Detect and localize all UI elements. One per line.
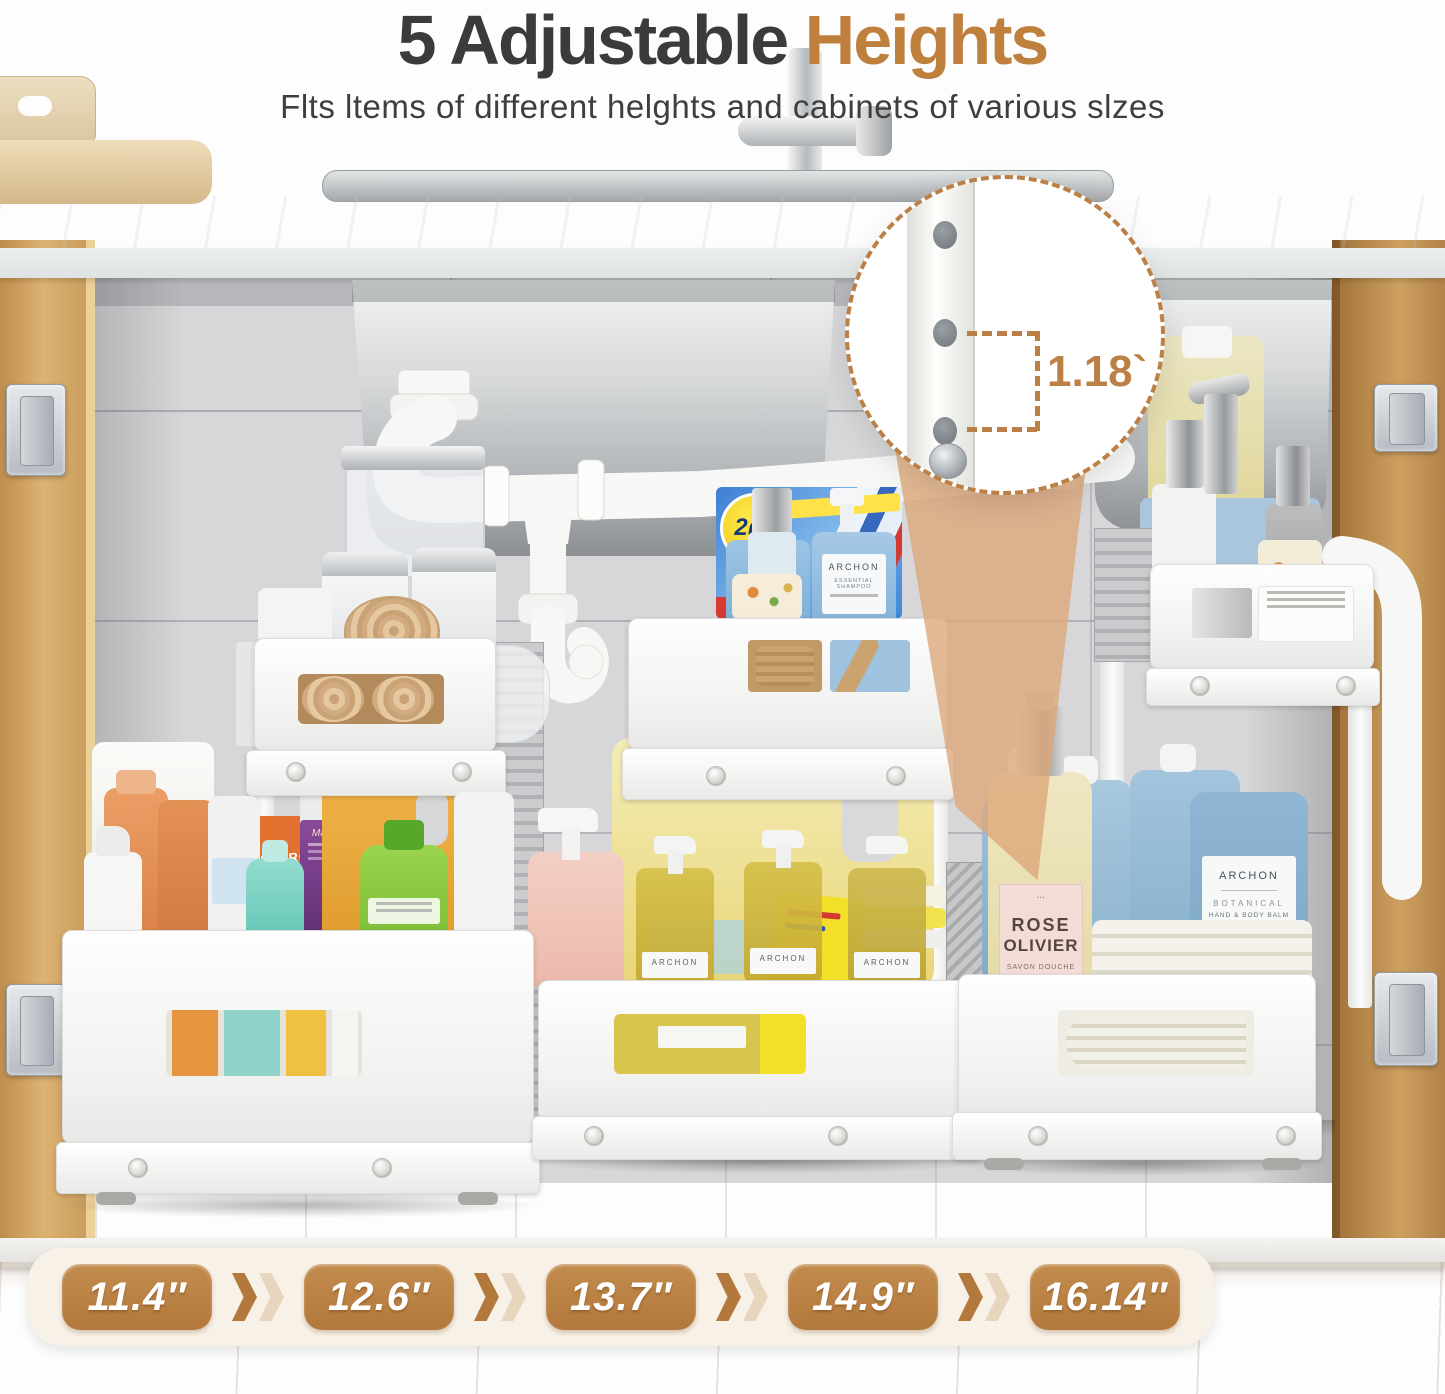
screw <box>452 762 472 782</box>
basin-left-shadow <box>352 280 835 302</box>
double-chevron-right-icon <box>958 1273 1010 1321</box>
left-bottom-bin-window <box>166 1010 362 1076</box>
window-bottle-strip <box>332 1010 358 1076</box>
chevron-right-icon <box>259 1273 284 1321</box>
pink-pump-stem <box>562 828 580 860</box>
chevron-right-icon <box>985 1273 1010 1321</box>
chevron-right-icon <box>743 1273 768 1321</box>
screw <box>1190 676 1210 696</box>
rose-line3: SAVON DOUCHE <box>1000 964 1082 971</box>
orange-bottle-cap <box>116 770 156 794</box>
pink-pump-bottle <box>528 852 624 988</box>
green-bottle-label <box>368 898 440 924</box>
window-label <box>658 1026 746 1048</box>
chevron-right-icon <box>232 1273 257 1321</box>
screw <box>886 766 906 786</box>
tall-oil-bottle-cap <box>1182 326 1232 358</box>
left-top-tier-window <box>298 674 444 724</box>
amber-pump-head <box>866 836 908 854</box>
measure-bracket-bottom <box>967 427 1037 432</box>
amber-bottle-label: ARCHON <box>854 952 920 978</box>
double-chevron-right-icon <box>474 1273 526 1321</box>
size-badge: 13.7″ <box>546 1264 696 1330</box>
gray-pump-cap <box>1276 446 1310 506</box>
bin-foot <box>96 1192 136 1205</box>
towel-roll <box>302 676 364 722</box>
amber-bottle-label: ARCHON <box>642 952 708 978</box>
shampoo-line: ESSENTIAL SHAMPOO <box>822 578 886 590</box>
rose-small-line: ••• <box>1000 895 1082 901</box>
pipe-coupling <box>578 460 604 520</box>
blue-bottle-cap <box>1160 744 1196 772</box>
size-badge: 16.14″ <box>1030 1264 1180 1330</box>
size-badge-label: 16.14″ <box>1042 1275 1167 1320</box>
amber-bottle-label: ARCHON <box>750 948 816 974</box>
blue-shampoo-bottle: ARCHON ESSENTIAL SHAMPOO <box>812 532 896 620</box>
rail-hole <box>933 319 957 347</box>
measure-bracket-top <box>967 331 1037 336</box>
right-tier-sticker-label <box>1258 586 1354 642</box>
pipe-trap-cap <box>569 645 603 679</box>
screw <box>1028 1126 1048 1146</box>
amber-pump-bottle: ARCHON <box>848 868 926 986</box>
title-prefix: 5 Adjustable <box>398 1 788 79</box>
rail-hole <box>933 417 957 445</box>
window-jar <box>756 646 814 686</box>
shampoo-brand: ARCHON <box>822 562 886 572</box>
spray-bottle-cap <box>752 488 792 534</box>
balm-line1: BOTANICAL <box>1202 899 1296 908</box>
size-badge-label: 12.6″ <box>328 1275 430 1320</box>
middle-tier-window <box>748 640 822 692</box>
chevron-right-icon <box>501 1273 526 1321</box>
chevron-right-icon <box>474 1273 499 1321</box>
drain-flange <box>398 370 470 396</box>
rose-line2: OLIVIER <box>1000 936 1082 956</box>
size-badge: 14.9″ <box>788 1264 938 1330</box>
floral-bottle <box>732 574 802 620</box>
window-bottle-strip <box>172 1010 218 1076</box>
title-accent: Heights <box>805 1 1048 79</box>
rose-line1: ROSE <box>1000 915 1082 936</box>
size-badge: 11.4″ <box>62 1264 212 1330</box>
screw <box>128 1158 148 1178</box>
white-pump-bottle <box>454 792 514 952</box>
size-badge: 12.6″ <box>304 1264 454 1330</box>
window-yellow-pack <box>760 1014 806 1074</box>
double-chevron-right-icon <box>716 1273 768 1321</box>
right-tier-sticker-metal <box>1192 588 1252 638</box>
chrome-pump-cap <box>1166 420 1204 488</box>
size-badge-label: 14.9″ <box>812 1275 914 1320</box>
screw <box>286 762 306 782</box>
size-banner: 11.4″ 12.6″ 13.7″ 14.9″ 16.14″ <box>28 1248 1214 1346</box>
screw <box>706 766 726 786</box>
measurement-text: 1.18` <box>1047 347 1147 397</box>
rail-hole <box>933 221 957 249</box>
amber-pump-stem <box>668 850 683 874</box>
amber-pump-bottle: ARCHON <box>636 868 714 986</box>
screw <box>828 1126 848 1146</box>
size-badge-label: 13.7″ <box>570 1275 672 1320</box>
right-unit-side-rail <box>1094 528 1154 662</box>
window-brush-handle <box>833 640 882 692</box>
glass-canister-lid <box>341 446 485 470</box>
screw <box>372 1158 392 1178</box>
middle-bottom-bin-window <box>614 1014 806 1074</box>
amber-pump-bottle: ARCHON <box>744 862 822 984</box>
rail-bolt <box>929 443 967 479</box>
amber-pump-stem <box>776 844 791 868</box>
balm-brand: ARCHON <box>1202 870 1296 882</box>
right-bottom-bin-window <box>1058 1010 1254 1076</box>
right-bottom-bin-base <box>952 1112 1322 1160</box>
pipe-drop <box>530 520 566 602</box>
towel-roll <box>372 676 434 722</box>
bin-foot <box>1262 1158 1302 1170</box>
bin-foot <box>458 1192 498 1205</box>
screw <box>1276 1126 1296 1146</box>
right-unit-leg <box>1348 668 1372 1008</box>
product-infographic: DETERGENT Mabel's 2в1 <box>0 0 1445 1394</box>
label-text-lines <box>822 594 886 597</box>
balm-line2: HAND & BODY BALM <box>1202 912 1296 919</box>
window-towel-roll <box>1066 1016 1246 1070</box>
label-divider <box>1221 890 1277 891</box>
page-subtitle: Flts ltems of different helghts and cabi… <box>0 88 1445 126</box>
bin-foot <box>984 1158 1024 1170</box>
window-bottle-strip <box>286 1010 326 1076</box>
label-text-lines <box>1259 591 1353 608</box>
green-bottle-cap <box>384 820 424 850</box>
size-badge-label: 11.4″ <box>87 1275 186 1320</box>
white-jar-lid <box>412 548 496 572</box>
pipe-coupling <box>483 466 509 526</box>
screw <box>584 1126 604 1146</box>
curved-pump-stem <box>1204 394 1238 494</box>
screw <box>1336 676 1356 696</box>
chevron-right-icon <box>958 1273 983 1321</box>
measure-bracket-right <box>1035 331 1040 431</box>
white-jar-lid <box>322 552 408 576</box>
window-bottle-strip <box>224 1010 280 1076</box>
callout-circle: 1.18` <box>845 175 1165 495</box>
teal-bottle-cap <box>262 840 288 862</box>
page-title: 5 Adjustable Heights <box>0 2 1445 78</box>
chevron-right-icon <box>716 1273 741 1321</box>
pump-head <box>96 826 130 856</box>
double-chevron-right-icon <box>232 1273 284 1321</box>
middle-tier-window <box>830 640 910 692</box>
